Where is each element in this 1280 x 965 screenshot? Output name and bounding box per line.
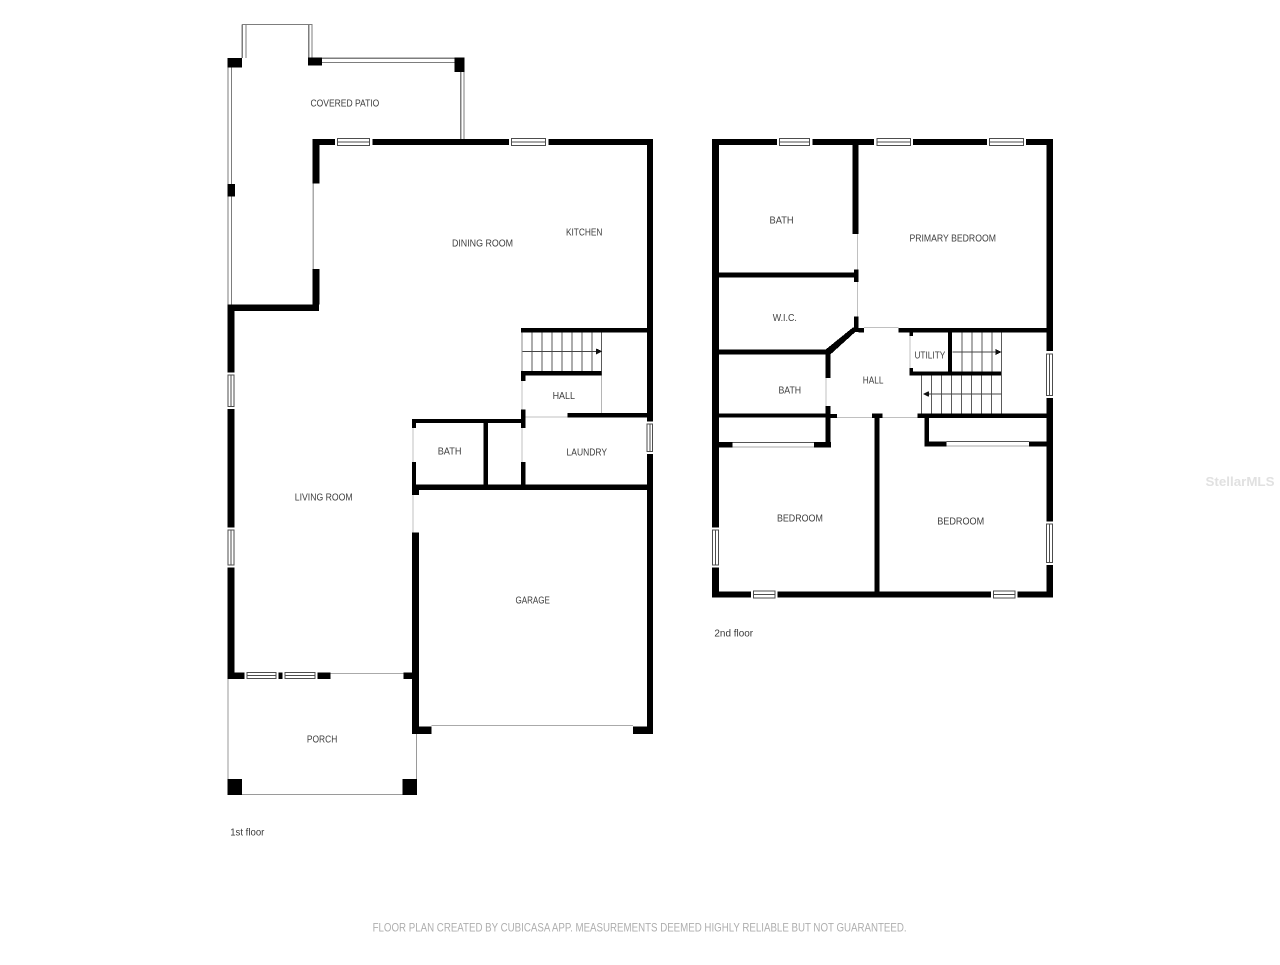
svg-text:BATH: BATH: [438, 447, 462, 458]
svg-text:BEDROOM: BEDROOM: [937, 517, 984, 528]
svg-text:LIVING ROOM: LIVING ROOM: [295, 493, 353, 504]
svg-text:PORCH: PORCH: [307, 735, 337, 746]
svg-text:PRIMARY BEDROOM: PRIMARY BEDROOM: [909, 234, 996, 245]
svg-text:LAUNDRY: LAUNDRY: [567, 448, 608, 459]
svg-text:W.I.C.: W.I.C.: [773, 313, 797, 324]
svg-text:BEDROOM: BEDROOM: [777, 514, 823, 525]
svg-text:2nd floor: 2nd floor: [714, 629, 753, 640]
svg-text:HALL: HALL: [553, 391, 576, 402]
svg-text:KITCHEN: KITCHEN: [566, 228, 603, 239]
svg-text:BATH: BATH: [770, 215, 794, 226]
svg-text:StellarMLS: StellarMLS: [1206, 474, 1275, 489]
svg-text:COVERED PATIO: COVERED PATIO: [311, 99, 380, 110]
svg-text:GARAGE: GARAGE: [515, 595, 550, 606]
svg-text:HALL: HALL: [863, 376, 884, 387]
svg-text:FLOOR PLAN CREATED BY CUBICASA: FLOOR PLAN CREATED BY CUBICASA APP. MEAS…: [373, 920, 907, 934]
svg-text:1st floor: 1st floor: [230, 828, 265, 839]
svg-text:BATH: BATH: [778, 386, 801, 397]
svg-text:DINING ROOM: DINING ROOM: [452, 238, 513, 249]
svg-text:UTILITY: UTILITY: [914, 350, 945, 361]
